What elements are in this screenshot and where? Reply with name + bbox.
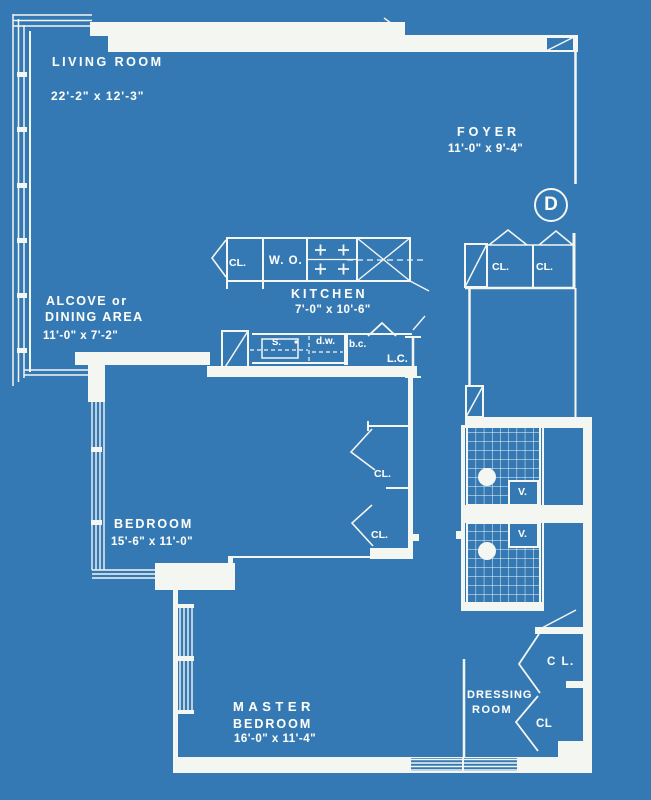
living-room-label: LIVING ROOM [52, 56, 164, 69]
bedroom-dims: 15'-6" x 11'-0" [111, 537, 193, 549]
alcove-label-line1: ALCOVE or [46, 295, 128, 308]
dressing-closet-1-label: C L. [547, 657, 575, 669]
kitchen-dims: 7'-0" x 10'-6" [295, 305, 371, 317]
master-bedroom-label-line2: BEDROOM [233, 718, 312, 731]
foyer-closet-1-label: CL. [492, 262, 509, 273]
floor-plan: D LIVING ROOM 22'-2" x 12'-3" FOYER 11'-… [0, 0, 651, 800]
kitchen-closet-label: CL. [229, 258, 246, 269]
unit-letter-badge: D [534, 188, 568, 222]
dressing-room-label-line1: DRESSING [467, 690, 532, 701]
master-bedroom-dims: 16'-0" x 11'-4" [234, 734, 316, 746]
dressing-room-label-line2: ROOM [472, 705, 512, 716]
dishwasher-label: d.w. [316, 337, 335, 347]
vanity-1-label: V. [518, 487, 527, 498]
living-room-dims: 22'-2" x 12'-3" [51, 90, 144, 102]
bathrooms [456, 417, 592, 773]
floor-plan-drawing [0, 0, 651, 800]
foyer-label: FOYER [457, 126, 520, 139]
bedroom-walls [91, 377, 413, 590]
alcove-dims: 11'-0" x 7'-2" [43, 331, 118, 343]
foyer-closet-2-label: CL. [536, 262, 553, 273]
bedroom-closet-2-label: CL. [371, 530, 388, 541]
linen-closet-label: L.C. [387, 354, 408, 365]
dressing-closet-2-label: CL [536, 719, 552, 731]
master-bedroom-label-line1: MASTER [233, 700, 315, 713]
unit-letter: D [544, 194, 558, 216]
sink-label: S. [272, 338, 281, 348]
bedroom-label: BEDROOM [114, 518, 193, 531]
foyer-closets [465, 230, 575, 288]
base-cabinet-label: b.c. [349, 340, 366, 350]
kitchen-label: KITCHEN [291, 288, 368, 301]
wall-oven-label: W. O. [269, 256, 303, 268]
mid-walls [75, 352, 417, 402]
alcove-label-line2: DINING AREA [45, 311, 144, 324]
hall-wall [466, 288, 483, 417]
vanity-2-label: V. [518, 529, 527, 540]
bedroom-closet-1-label: CL. [374, 469, 391, 480]
foyer-dims: 11'-0" x 9'-4" [448, 144, 523, 156]
